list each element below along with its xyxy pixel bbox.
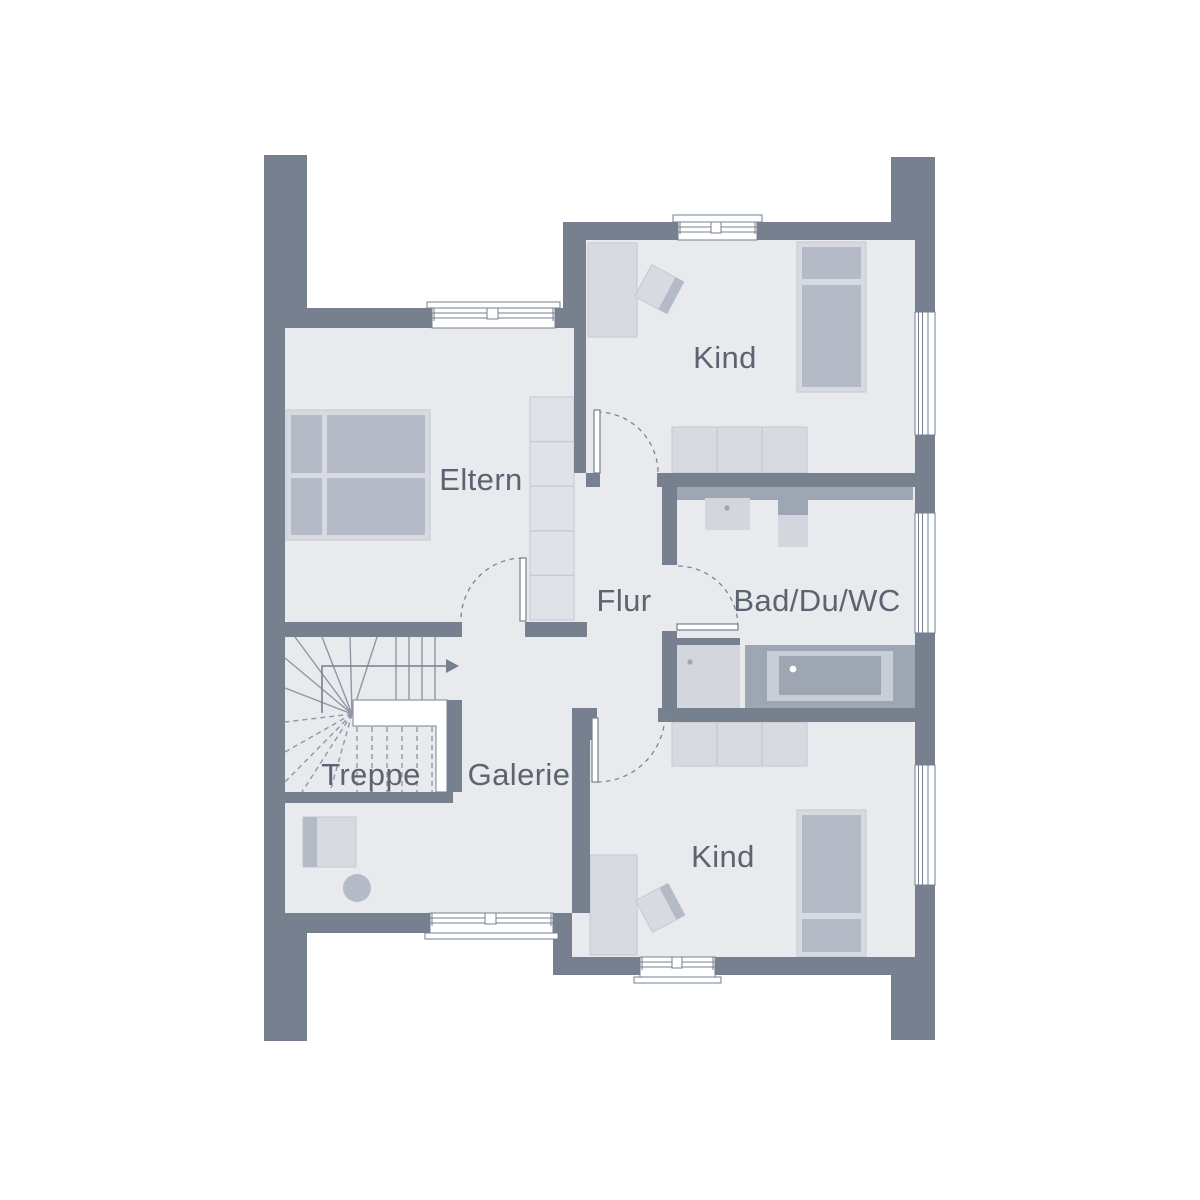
wall-segment bbox=[264, 933, 307, 1041]
room-label-flur: Flur bbox=[597, 583, 652, 618]
window-kind-bottom bbox=[634, 957, 721, 983]
wall-segment bbox=[915, 633, 935, 765]
wall-segment bbox=[525, 622, 587, 637]
room-label-kind-top: Kind bbox=[693, 340, 757, 375]
wall-segment bbox=[264, 328, 285, 913]
shower bbox=[677, 645, 740, 708]
wall-segment bbox=[572, 708, 590, 913]
window-right-kind-top bbox=[915, 312, 935, 435]
bathtub-faucet bbox=[790, 666, 797, 673]
wall-segment bbox=[563, 240, 586, 308]
wall-segment bbox=[915, 435, 935, 513]
room-label-treppe: Treppe bbox=[321, 757, 420, 792]
wall-segment bbox=[677, 638, 740, 645]
wall-segment bbox=[657, 473, 915, 487]
single-bed bbox=[797, 242, 866, 392]
wall-segment bbox=[283, 792, 453, 803]
wall-segment bbox=[715, 957, 935, 975]
wall-segment bbox=[658, 708, 915, 722]
wall-segment bbox=[891, 157, 935, 238]
room-label-kind-bottom: Kind bbox=[691, 839, 755, 874]
sideboard bbox=[672, 427, 807, 473]
wardrobe bbox=[590, 855, 637, 955]
window-galerie bbox=[425, 913, 558, 939]
wall-segment bbox=[586, 473, 600, 487]
floor-plan-drawing: Kind Eltern Flur Bad/Du/WC Treppe Galeri… bbox=[0, 0, 1200, 1200]
stool bbox=[343, 874, 371, 902]
room-label-eltern: Eltern bbox=[439, 462, 522, 497]
wall-segment bbox=[285, 622, 462, 637]
eltern-cabinet bbox=[530, 397, 574, 620]
eltern-double-bed bbox=[286, 410, 430, 540]
desk bbox=[303, 817, 356, 867]
wall-segment bbox=[563, 222, 678, 240]
wall-segment bbox=[915, 238, 935, 312]
wall-segment bbox=[264, 913, 430, 933]
wardrobe bbox=[588, 243, 637, 337]
wall-segment bbox=[264, 155, 307, 308]
wall-segment bbox=[447, 700, 462, 792]
window-kind-top bbox=[673, 215, 762, 240]
single-bed bbox=[797, 810, 866, 957]
wall-segment bbox=[662, 487, 677, 565]
room-label-galerie: Galerie bbox=[468, 757, 571, 792]
sideboard bbox=[672, 722, 807, 766]
window-right-bad bbox=[915, 513, 935, 633]
bathtub bbox=[745, 645, 915, 708]
washbasin bbox=[705, 498, 750, 530]
window-eltern bbox=[427, 302, 560, 328]
wall-segment bbox=[557, 957, 640, 975]
wall-segment bbox=[574, 328, 586, 473]
room-label-bad: Bad/Du/WC bbox=[733, 583, 900, 618]
window-right-kind-bottom bbox=[915, 765, 935, 885]
wall-segment bbox=[915, 885, 935, 958]
toilet bbox=[778, 487, 808, 547]
wall-segment bbox=[662, 631, 677, 710]
floor-plan-page: Kind Eltern Flur Bad/Du/WC Treppe Galeri… bbox=[0, 0, 1200, 1200]
